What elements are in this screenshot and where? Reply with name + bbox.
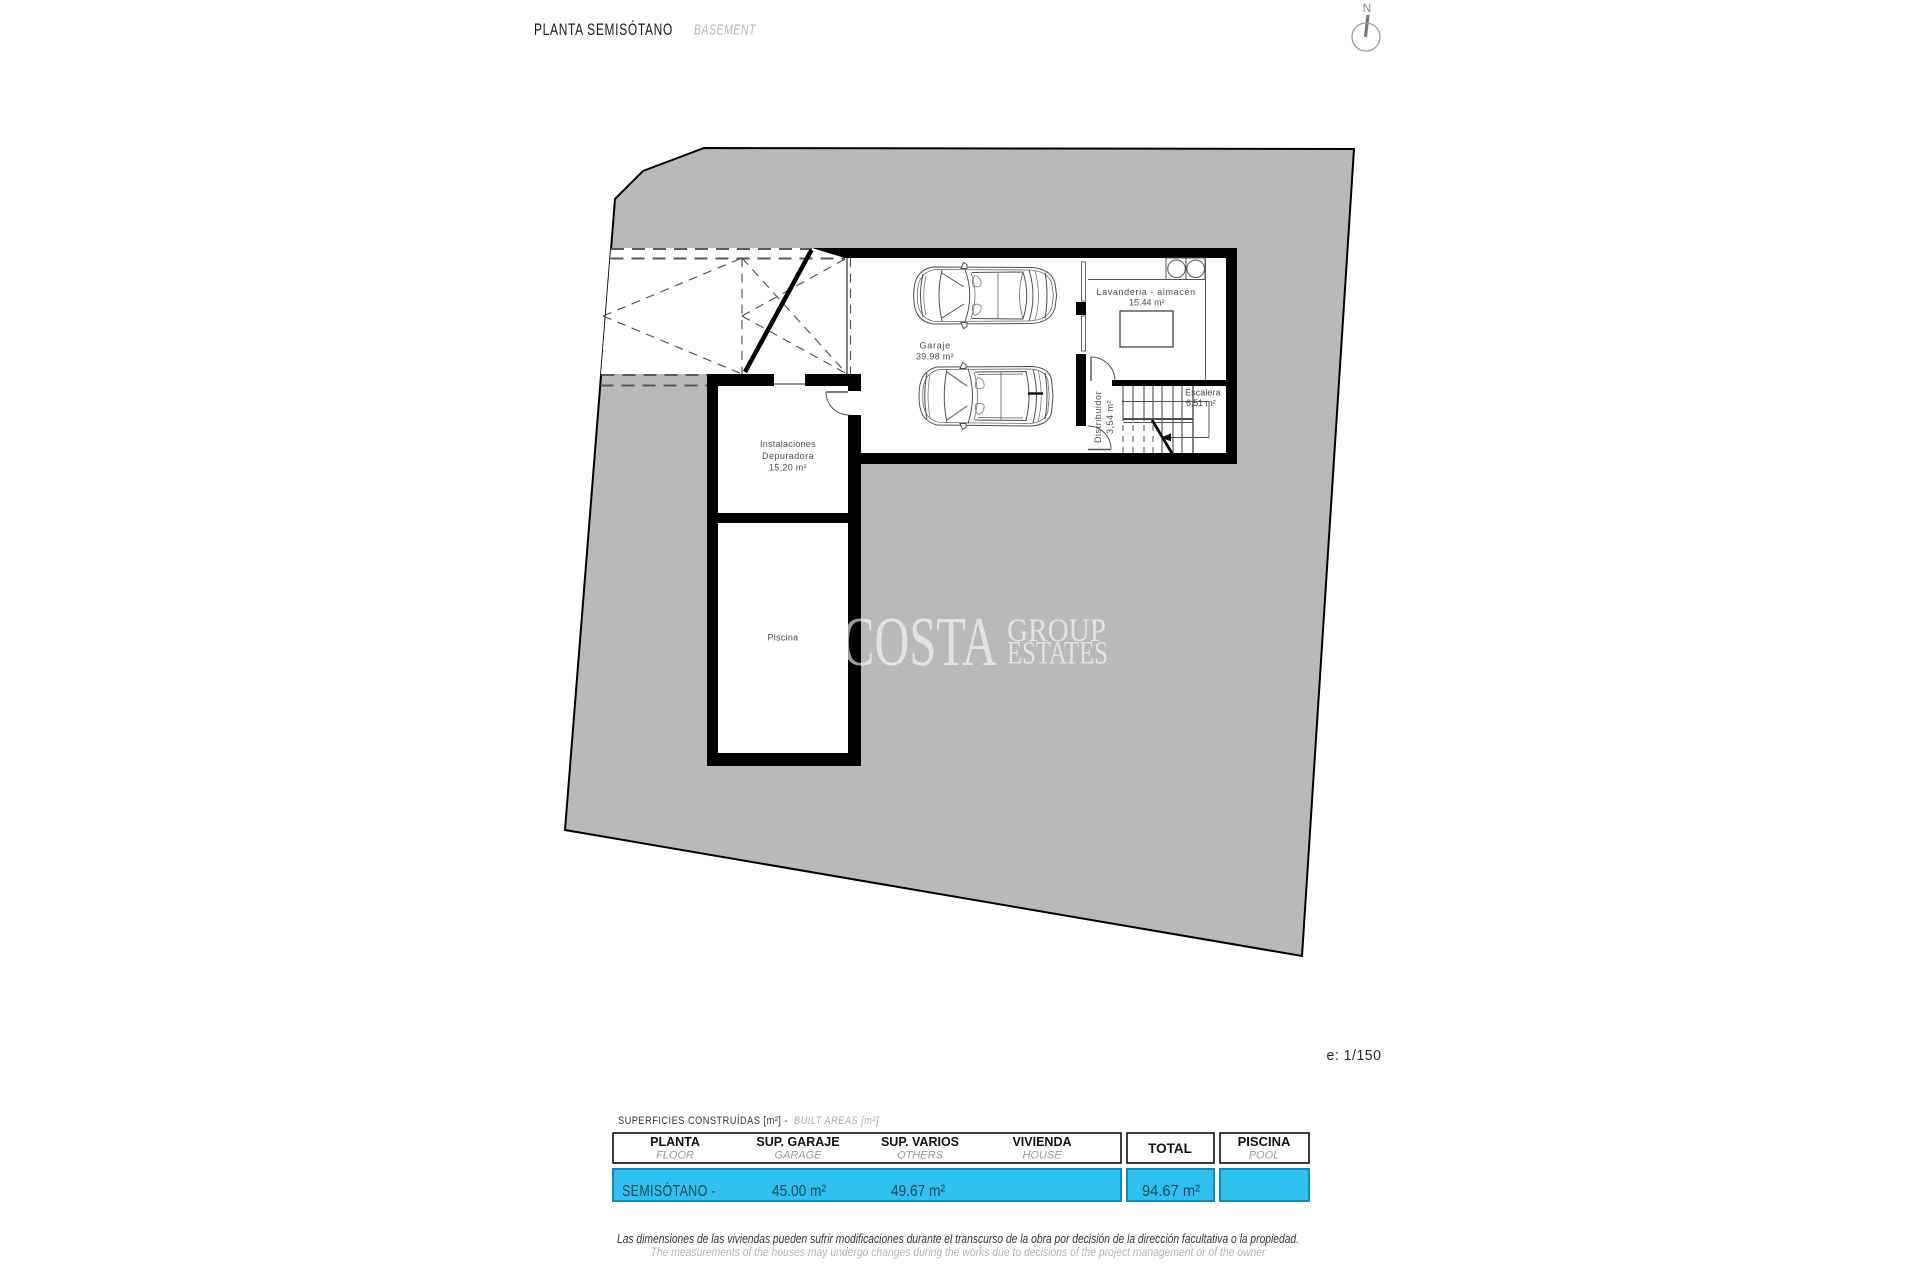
svg-text:SUP. VARIOS: SUP. VARIOS <box>881 1135 959 1149</box>
svg-text:GARAGE: GARAGE <box>774 1150 822 1162</box>
svg-text:Lavanderia - almacén: Lavanderia - almacén <box>1097 287 1196 297</box>
svg-text:PISCINA: PISCINA <box>1238 1134 1291 1149</box>
svg-text:SUPERFICIES CONSTRUÍDAS [m²] -: SUPERFICIES CONSTRUÍDAS [m²] - <box>618 1114 788 1127</box>
svg-text:Las dimensiones de las viviend: Las dimensiones de las viviendas pueden … <box>617 1232 1299 1246</box>
svg-text:BASEMENT: BASEMENT <box>694 22 757 39</box>
svg-text:FLOOR: FLOOR <box>656 1150 694 1162</box>
svg-text:15.44 m²: 15.44 m² <box>1129 298 1165 308</box>
svg-text:49.67 m²: 49.67 m² <box>891 1183 946 1200</box>
svg-text:N: N <box>1363 1 1372 15</box>
svg-text:VIVIENDA: VIVIENDA <box>1012 1135 1071 1149</box>
svg-text:Garaje: Garaje <box>920 341 951 351</box>
svg-text:HOUSE: HOUSE <box>1022 1150 1062 1162</box>
svg-text:BUILT AREAS [m²]: BUILT AREAS [m²] <box>794 1115 879 1127</box>
svg-text:Piscina: Piscina <box>768 633 799 643</box>
svg-text:39.98 m²: 39.98 m² <box>916 352 954 362</box>
svg-text:PLANTA: PLANTA <box>650 1135 700 1149</box>
svg-text:94.67 m²: 94.67 m² <box>1142 1183 1201 1200</box>
svg-text:OTHERS: OTHERS <box>897 1150 944 1162</box>
svg-text:e: 1/150: e: 1/150 <box>1327 1048 1382 1064</box>
svg-text:Escalera: Escalera <box>1185 388 1221 398</box>
svg-text:COSTA: COSTA <box>842 604 997 681</box>
svg-text:POOL: POOL <box>1249 1150 1280 1162</box>
svg-text:Distribuidor: Distribuidor <box>1093 391 1103 443</box>
svg-text:PLANTA SEMISÓTANO: PLANTA SEMISÓTANO <box>534 20 673 39</box>
svg-text:6,51 m²: 6,51 m² <box>1186 398 1216 408</box>
svg-text:Instalaciones: Instalaciones <box>760 439 816 449</box>
svg-text:The measurements of the houses: The measurements of the houses may under… <box>651 1245 1267 1259</box>
svg-text:3,54 m²: 3,54 m² <box>1105 400 1115 434</box>
svg-text:Depuradora: Depuradora <box>762 451 814 461</box>
svg-text:15,20 m²: 15,20 m² <box>769 463 807 473</box>
svg-text:SEMISÓTANO -: SEMISÓTANO - <box>622 1181 716 1200</box>
svg-text:SUP. GARAJE: SUP. GARAJE <box>756 1135 839 1149</box>
svg-text:ESTATES: ESTATES <box>1007 636 1108 672</box>
svg-text:45.00 m²: 45.00 m² <box>772 1183 827 1200</box>
svg-text:TOTAL: TOTAL <box>1148 1141 1192 1156</box>
